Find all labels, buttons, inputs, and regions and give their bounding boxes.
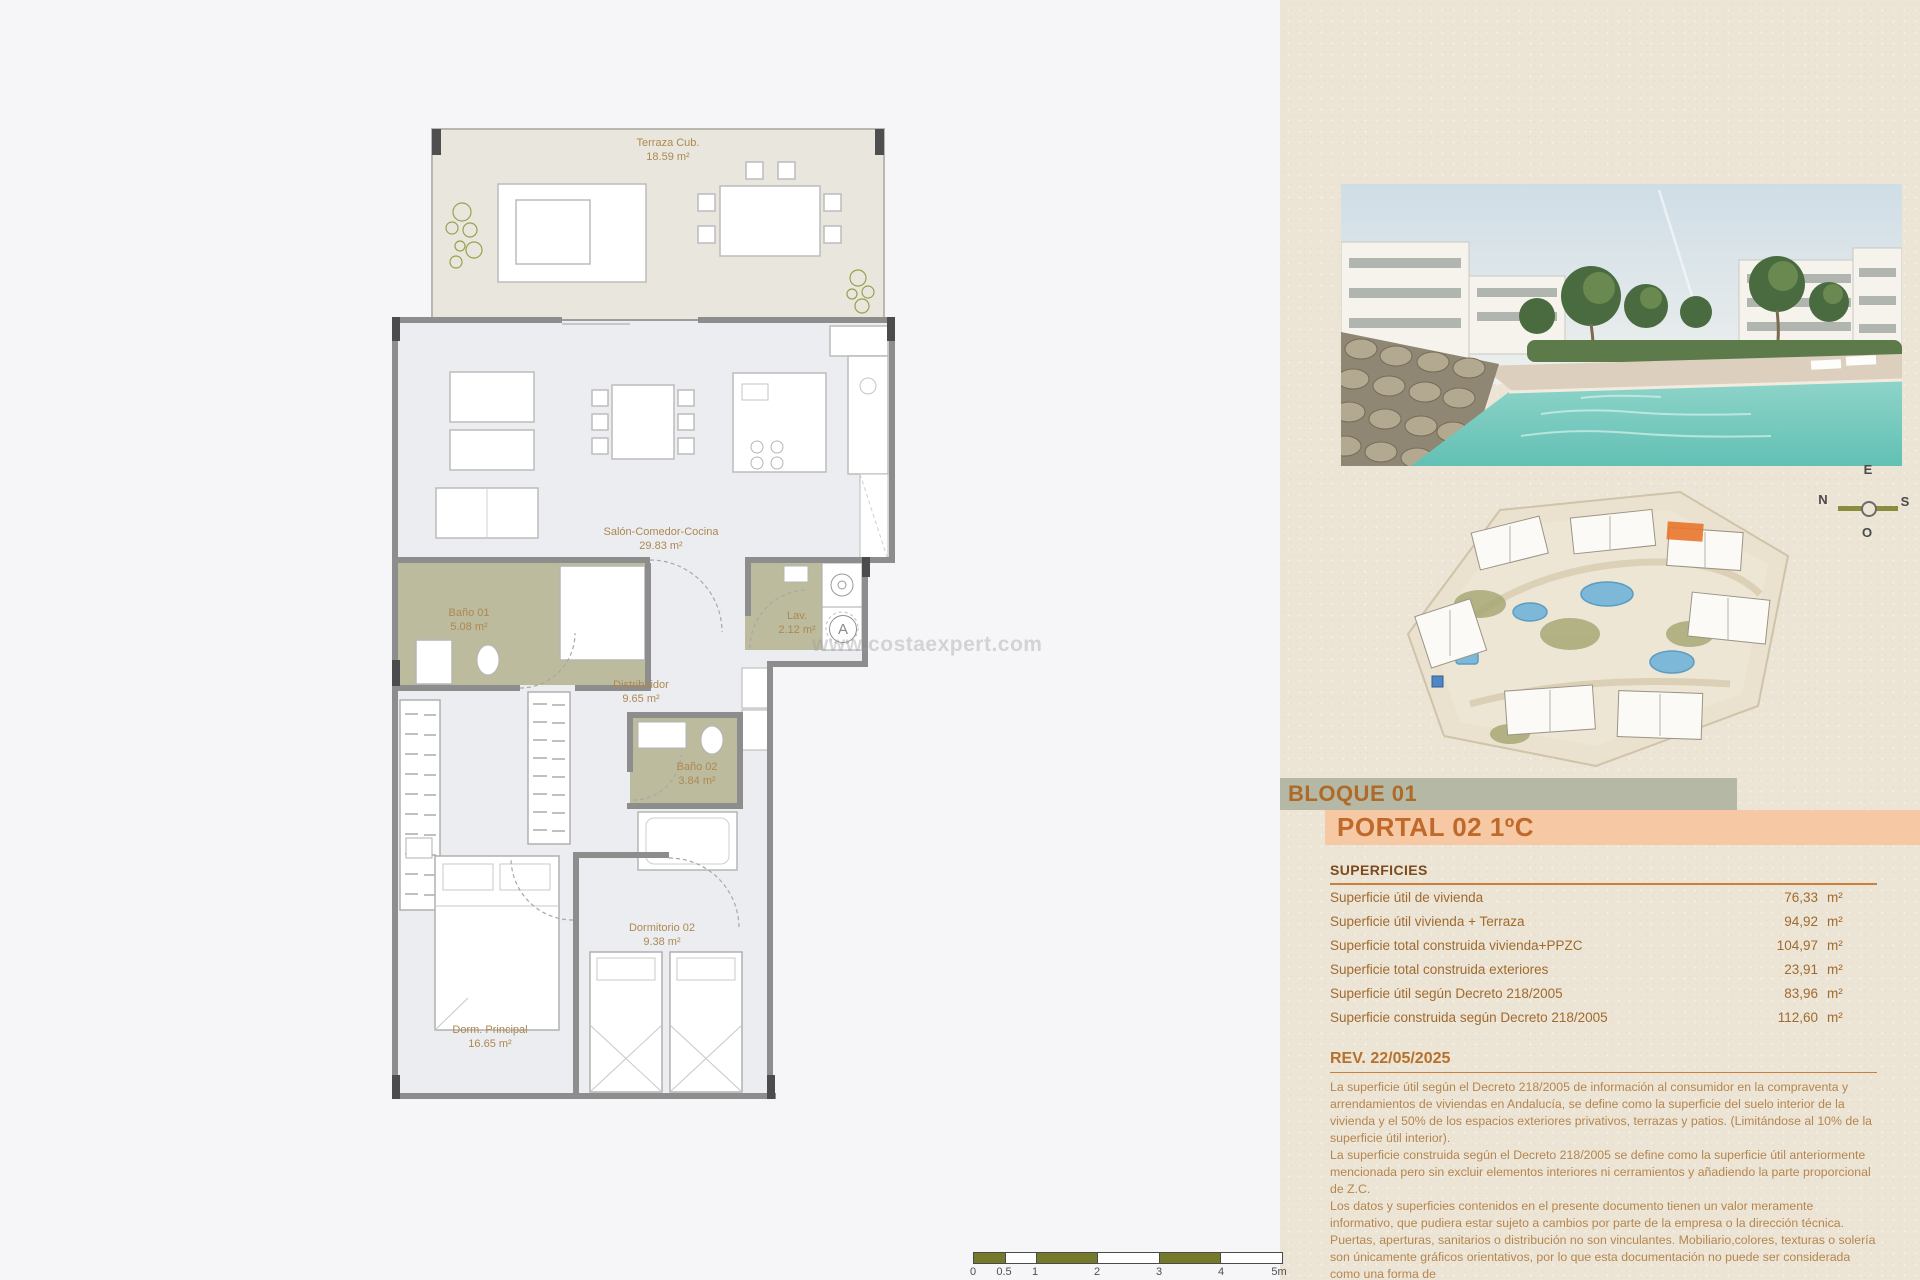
compass-n: N	[1818, 492, 1827, 507]
compass-s: S	[1901, 494, 1910, 509]
compass-o: O	[1862, 525, 1872, 540]
room-label-terraza: Terraza Cub. 18.59 m²	[637, 137, 700, 164]
legal-disclaimer: La superficie útil según el Decreto 218/…	[1330, 1079, 1877, 1280]
portal-marker	[1432, 676, 1443, 687]
superficie-value: 76,33	[1748, 890, 1818, 905]
compass: E N S O	[1810, 460, 1920, 552]
superficie-value: 23,91	[1748, 962, 1818, 977]
scale-bar: 0 0.5 1 2 3 4 5m	[973, 1252, 1283, 1278]
superficie-value: 83,96	[1748, 986, 1818, 1001]
table-row: Superficie total construida vivienda+PPZ…	[1330, 933, 1877, 957]
site-master-plan	[1360, 484, 1800, 774]
scale-bar-segments	[973, 1252, 1283, 1264]
portal-band: PORTAL 02 1ºC	[1325, 810, 1920, 845]
disclaimer-paragraph: La superficie construida según el Decret…	[1330, 1147, 1877, 1198]
superficie-value: 94,92	[1748, 914, 1818, 929]
superficie-label: Superficie útil de vivienda	[1330, 890, 1748, 905]
floor-plan-drawing	[390, 100, 910, 1110]
superficie-label: Superficie total construida vivienda+PPZ…	[1330, 938, 1748, 953]
superficie-label: Superficie útil vivienda + Terraza	[1330, 914, 1748, 929]
superficie-unit: m²	[1827, 962, 1853, 977]
portal-title: PORTAL 02 1ºC	[1325, 812, 1534, 843]
superficie-unit: m²	[1827, 1010, 1853, 1025]
table-row: Superficie construida según Decreto 218/…	[1330, 1005, 1877, 1029]
highlighted-block	[1667, 521, 1704, 541]
info-panel: E N S O	[1280, 0, 1920, 1280]
brochure-page: Terraza Cub. 18.59 m² Salón-Comedor-Coci…	[0, 0, 1920, 1280]
superficies-title: SUPERFICIES	[1330, 862, 1877, 885]
disclaimer-paragraph: Los datos y superficies contenidos en el…	[1330, 1198, 1877, 1280]
disclaimer-paragraph: La superficie útil según el Decreto 218/…	[1330, 1079, 1877, 1147]
superficie-value: 104,97	[1748, 938, 1818, 953]
scale-bar-labels: 0 0.5 1 2 3 4 5m	[973, 1264, 1283, 1278]
superficie-value: 112,60	[1748, 1010, 1818, 1025]
revision-title: REV. 22/05/2025	[1330, 1050, 1877, 1073]
room-label-bano1: Baño 01 5.08 m²	[449, 607, 490, 634]
revision-block: REV. 22/05/2025 La superficie útil según…	[1330, 1050, 1877, 1280]
bloque-title: BLOQUE 01	[1280, 781, 1417, 807]
room-label-salon: Salón-Comedor-Cocina 29.83 m²	[604, 526, 719, 553]
table-row: Superficie total construida exteriores 2…	[1330, 957, 1877, 981]
superficie-label: Superficie total construida exteriores	[1330, 962, 1748, 977]
superficie-label: Superficie construida según Decreto 218/…	[1330, 1010, 1748, 1025]
room-label-lavadero: Lav. 2.12 m²	[778, 610, 815, 637]
dining-set	[592, 385, 694, 459]
watermark-text: www.costaexpert.com	[812, 633, 1042, 657]
superficie-unit: m²	[1827, 938, 1853, 953]
superficie-label: Superficie útil según Decreto 218/2005	[1330, 986, 1748, 1001]
compass-e: E	[1864, 462, 1873, 477]
bloque-band: BLOQUE 01	[1280, 778, 1737, 810]
room-label-dorm-principal: Dorm. Principal 16.65 m²	[452, 1024, 527, 1051]
table-row: Superficie útil vivienda + Terraza 94,92…	[1330, 909, 1877, 933]
superficie-unit: m²	[1827, 914, 1853, 929]
superficie-unit: m²	[1827, 890, 1853, 905]
terrace-lounge	[498, 184, 646, 282]
room-label-distribuidor: Distribuidor 9.65 m²	[613, 679, 669, 706]
table-row: Superficie útil de vivienda 76,33 m²	[1330, 885, 1877, 909]
superficie-unit: m²	[1827, 986, 1853, 1001]
compass-hub	[1861, 501, 1877, 517]
table-row: Superficie útil según Decreto 218/2005 8…	[1330, 981, 1877, 1005]
room-label-dormitorio2: Dormitorio 02 9.38 m²	[629, 922, 695, 949]
superficies-table: SUPERFICIES Superficie útil de vivienda …	[1330, 862, 1877, 1029]
resort-photo	[1341, 184, 1902, 466]
room-label-bano2: Baño 02 3.84 m²	[677, 761, 718, 788]
